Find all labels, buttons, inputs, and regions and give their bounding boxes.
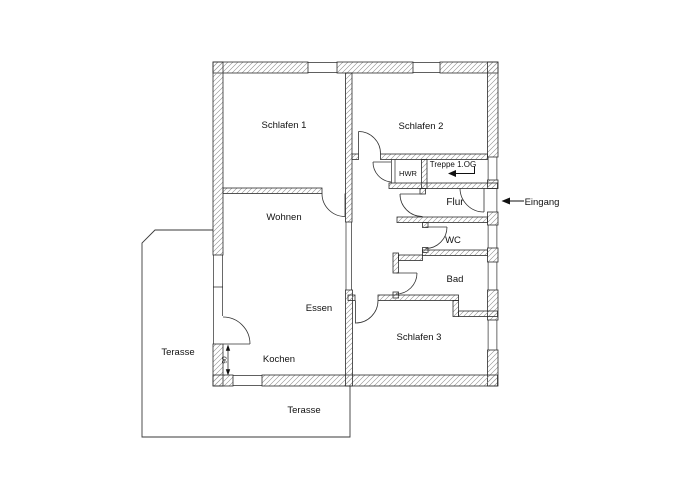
room-label-kochen: Kochen <box>263 354 295 365</box>
wall-flur-left-stub <box>420 189 426 195</box>
floor-plan-drawing: Schlafen 1 Schlafen 2 Wohnen Essen Koche… <box>0 0 700 500</box>
room-label-schlafen1: Schlafen 1 <box>262 120 307 131</box>
wall-nook-bottom <box>399 255 423 261</box>
door-flur <box>400 194 423 217</box>
wall-segment <box>337 62 413 73</box>
wall-below-hwr-treppe <box>389 183 498 189</box>
room-label-schlafen3: Schlafen 3 <box>397 332 442 343</box>
wall-segment <box>488 212 499 225</box>
room-label-hwr: HWR <box>399 169 417 178</box>
window-right-schlafen3 <box>488 320 497 350</box>
wall-segment <box>488 248 499 262</box>
label-eingang: Eingang <box>525 197 560 208</box>
room-label-essen: Essen <box>306 303 332 314</box>
wall-segment <box>262 375 498 386</box>
windows <box>213 63 497 386</box>
wall-segment <box>488 62 499 157</box>
passage-essen-corridor <box>346 222 352 290</box>
label-terasse-left: Terasse <box>161 347 194 358</box>
wall-schlafen3-top-b <box>378 295 459 301</box>
room-label-wc: WC <box>445 235 461 246</box>
wall-bad-left-a <box>393 253 399 273</box>
floor-plan-canvas: Schlafen 1 Schlafen 2 Wohnen Essen Koche… <box>0 0 700 500</box>
label-door-width: 90 <box>222 356 229 364</box>
wall-schlafen1-bottom <box>223 188 322 194</box>
door-hwr <box>373 162 391 182</box>
entrance-arrowhead <box>502 198 511 205</box>
window-top-1 <box>308 63 337 73</box>
wall-schlafen3-top-a <box>348 295 355 301</box>
entrance-arrow <box>502 198 525 205</box>
room-label-schlafen2: Schlafen 2 <box>399 121 444 132</box>
label-terasse-bottom: Terasse <box>287 405 320 416</box>
window-right-wc <box>488 225 497 248</box>
stairs-arrowhead <box>448 170 456 177</box>
door-terrace <box>223 317 250 344</box>
wall-schlafen1-schlafen2 <box>346 73 353 222</box>
hwr-door-frame <box>392 160 396 184</box>
wall-schlafen2-bottom-a <box>352 154 359 160</box>
door-schlafen2 <box>359 132 381 155</box>
wall-segment <box>213 62 308 73</box>
wall-segment <box>213 62 223 255</box>
window-left-double <box>213 255 223 316</box>
wall-segment <box>213 375 233 386</box>
wall-wc-bottom <box>423 250 488 256</box>
window-bottom-kochen <box>233 376 262 386</box>
room-label-wohnen: Wohnen <box>266 212 301 223</box>
outer-walls <box>213 62 498 386</box>
door-schlafen1 <box>322 194 345 217</box>
room-label-flur: Flur <box>446 197 464 208</box>
window-right-stairs <box>488 157 497 180</box>
door-schlafen3 <box>356 301 379 324</box>
wall-essen-schlafen3 <box>346 290 353 386</box>
room-label-bad: Bad <box>447 274 464 285</box>
wall-schlafen2-bottom-b <box>381 154 488 160</box>
label-treppe: Treppe 1.OG <box>430 160 476 169</box>
door-wc <box>426 227 448 249</box>
wall-bad-nook-vertical <box>453 301 459 317</box>
wall-flur-bottom <box>397 217 488 223</box>
door-bad <box>396 273 417 294</box>
window-right-bad <box>488 262 497 290</box>
window-top-2 <box>413 63 440 73</box>
wall-bad-nook-horizontal <box>459 311 498 317</box>
